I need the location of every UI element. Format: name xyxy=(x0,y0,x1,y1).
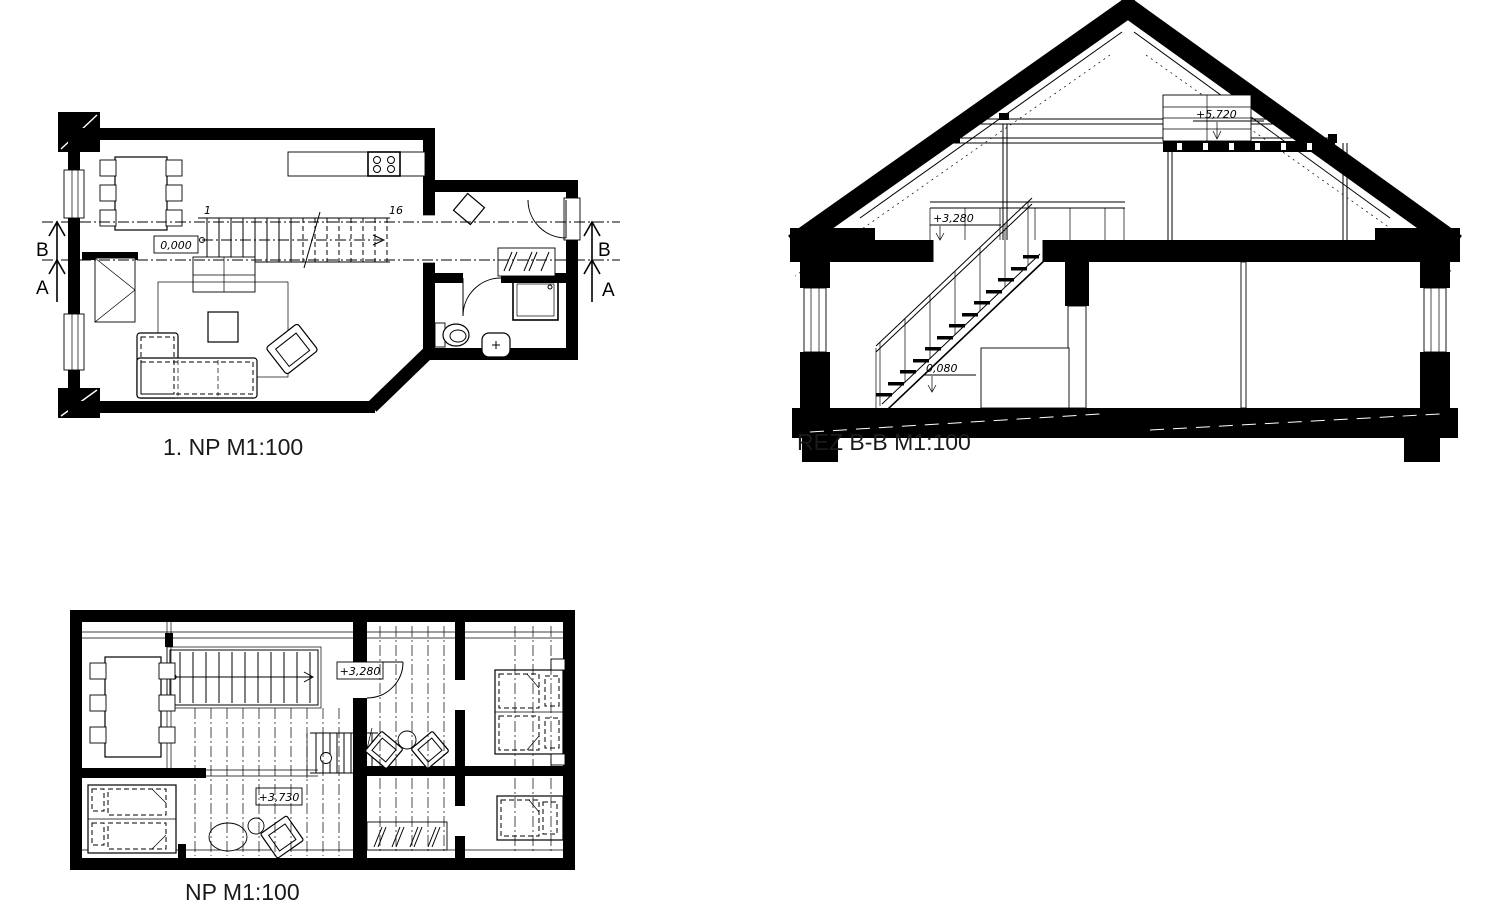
svg-text:+5,720: +5,720 xyxy=(1196,108,1237,121)
side-table xyxy=(248,818,264,834)
section-marker-b-label: B xyxy=(598,240,611,261)
stair-reference-bubble xyxy=(321,753,332,764)
dining-table xyxy=(90,657,175,757)
shoe-cabinet xyxy=(454,194,485,225)
toilet xyxy=(435,323,469,347)
loft-floor xyxy=(1163,141,1335,152)
level-label: 0,000 xyxy=(154,236,198,253)
chair xyxy=(100,185,116,201)
chair xyxy=(90,695,106,711)
kitchen-counter xyxy=(288,152,425,176)
cabinet xyxy=(981,348,1069,408)
svg-text:0,000: 0,000 xyxy=(160,239,192,252)
section-marker-b-label: B xyxy=(36,240,49,261)
round-table xyxy=(398,731,416,749)
bedside-post xyxy=(551,754,565,765)
plan2-caption: NP M1:100 xyxy=(185,879,300,905)
level-label: +3,280 xyxy=(337,662,383,679)
tv-bench xyxy=(193,257,255,292)
stair-direction-arrow xyxy=(200,235,385,245)
section-drawing: +5,720 +3,280 0,080 REZ B-B M1:100 xyxy=(780,0,1470,470)
chair xyxy=(90,663,106,679)
chair xyxy=(159,695,175,711)
armchair xyxy=(260,816,303,859)
chair xyxy=(100,210,116,226)
shower xyxy=(513,280,558,320)
level-label: 0,080 xyxy=(924,362,976,392)
stair-step-number: 1 xyxy=(204,204,211,217)
bedside-post xyxy=(551,659,565,670)
chair xyxy=(166,185,182,201)
chair xyxy=(166,210,182,226)
window xyxy=(1424,288,1446,352)
chair xyxy=(159,663,175,679)
attic-floor-plan: +3,280 xyxy=(60,600,620,910)
svg-text:+3,280: +3,280 xyxy=(340,665,381,678)
dining-table xyxy=(100,157,182,230)
level-label: +3,730 xyxy=(256,788,302,805)
section-marker-right: B A xyxy=(584,222,615,302)
attic-floor-slab xyxy=(795,240,1458,262)
foundation xyxy=(1404,438,1440,462)
plan1-caption: 1. NP M1:100 xyxy=(163,434,303,460)
stair-run xyxy=(167,647,321,708)
armchair xyxy=(365,731,403,769)
entry-door xyxy=(528,198,580,240)
chair xyxy=(159,727,175,743)
coffee-table xyxy=(208,312,238,342)
armchair xyxy=(266,323,318,374)
double-bed xyxy=(495,659,565,765)
rug xyxy=(209,823,247,851)
single-bed xyxy=(497,796,563,840)
corner-wardrobe xyxy=(95,258,135,322)
exterior-walls xyxy=(800,262,1450,410)
chair xyxy=(90,727,106,743)
bathroom-door xyxy=(463,278,501,316)
section-marker-a-label: A xyxy=(602,280,615,301)
level-label: +3,280 xyxy=(930,212,1001,240)
wardrobe-hangers xyxy=(498,248,555,276)
section-caption: REZ B-B M1:100 xyxy=(797,429,971,455)
svg-text:+3,730: +3,730 xyxy=(259,791,300,804)
blueprint-page: 1 16 0,000 xyxy=(0,0,1500,920)
window xyxy=(64,170,84,218)
wardrobe-hangers xyxy=(367,822,447,850)
armchair xyxy=(411,731,449,769)
sink xyxy=(482,333,510,357)
svg-text:0,080: 0,080 xyxy=(926,362,958,375)
roof xyxy=(790,8,1460,276)
stair-step-number: 16 xyxy=(389,204,403,217)
section-marker-left: B A xyxy=(36,222,65,302)
svg-text:+3,280: +3,280 xyxy=(933,212,974,225)
chair xyxy=(100,160,116,176)
sofa xyxy=(137,333,257,398)
double-bed xyxy=(88,785,176,853)
section-marker-a-label: A xyxy=(36,278,49,299)
interior-wall xyxy=(82,768,318,778)
window xyxy=(64,314,84,370)
chair xyxy=(166,160,182,176)
ground-floor-plan: 1 16 0,000 xyxy=(20,90,680,475)
window xyxy=(804,288,826,352)
